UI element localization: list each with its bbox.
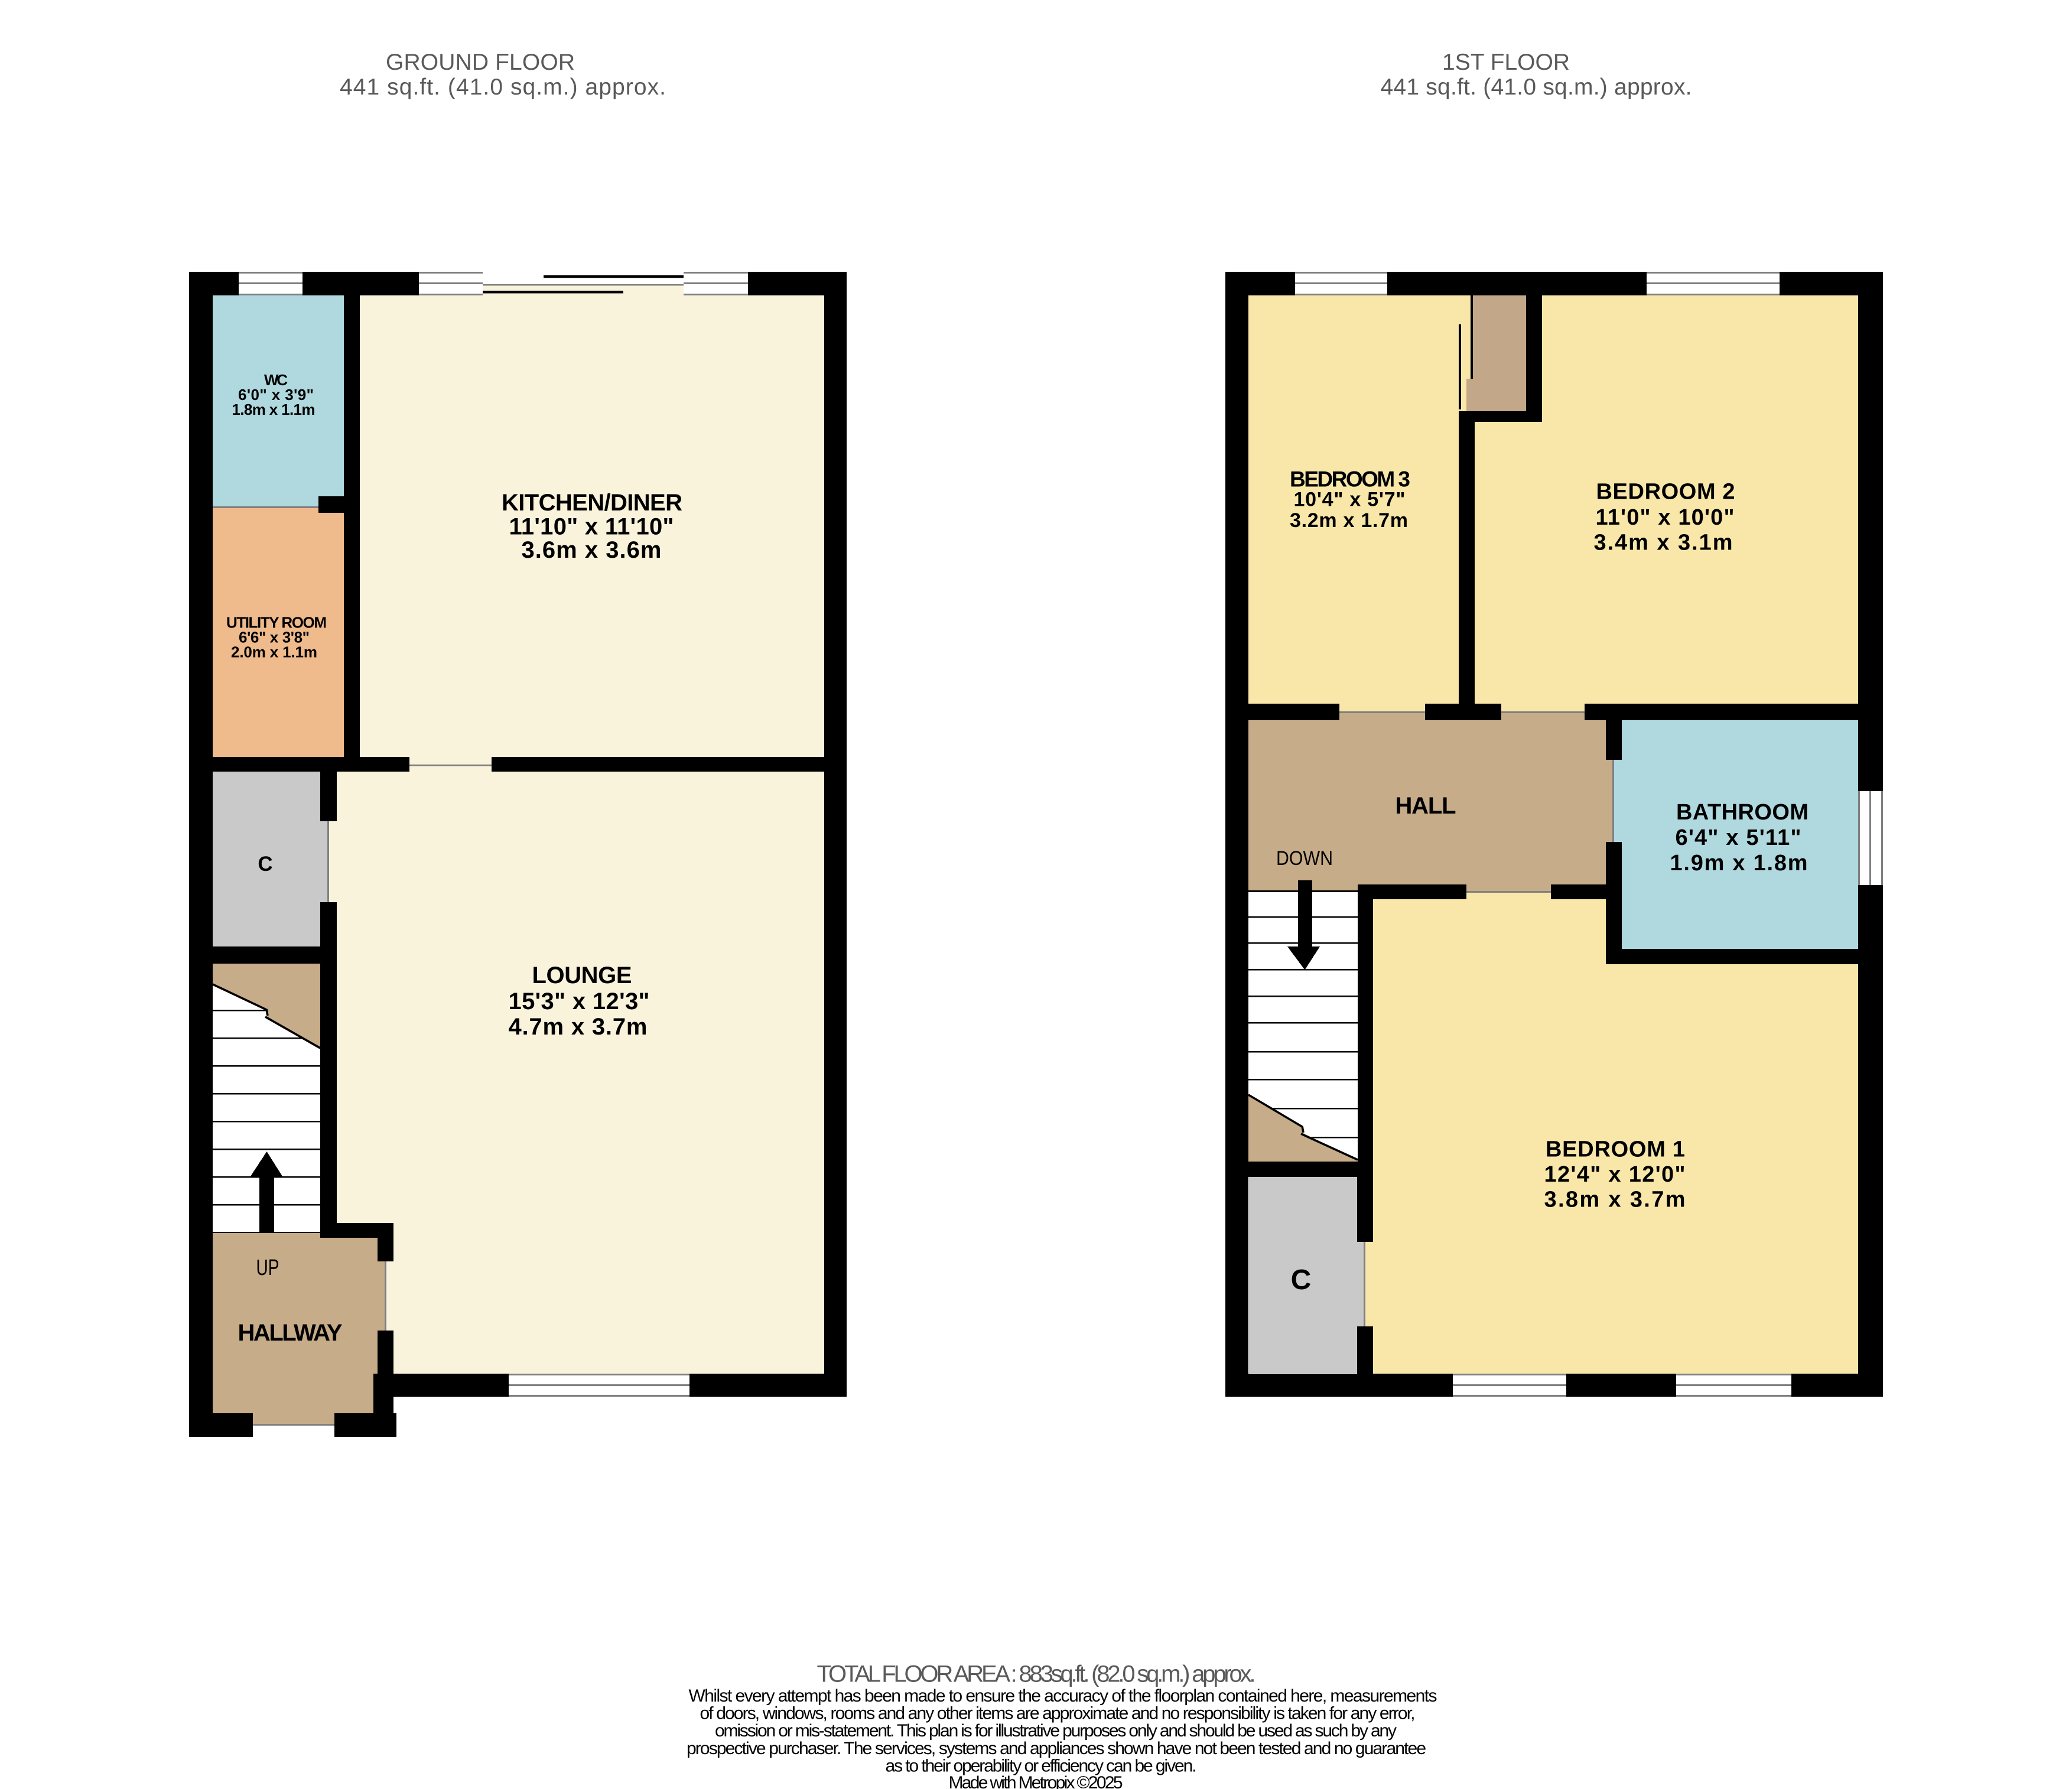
svg-text:6'4" x 5'11": 6'4" x 5'11" (1676, 825, 1801, 850)
svg-text:LOUNGE: LOUNGE (532, 962, 632, 988)
svg-text:omission or mis-statement. Thi: omission or mis-statement. This plan is … (715, 1721, 1397, 1741)
svg-text:TOTAL FLOOR AREA : 883sq.ft. (: TOTAL FLOOR AREA : 883sq.ft. (82.0 sq.m.… (817, 1661, 1256, 1687)
svg-text:Whilst every attempt has been: Whilst every attempt has been made to en… (689, 1686, 1437, 1706)
svg-text:BATHROOM: BATHROOM (1676, 800, 1808, 825)
svg-text:BEDROOM 3: BEDROOM 3 (1290, 467, 1410, 491)
svg-text:2.0m x 1.1m: 2.0m x 1.1m (231, 643, 317, 661)
svg-text:GROUND FLOOR: GROUND FLOOR (386, 50, 575, 75)
svg-text:prospective purchaser. The ser: prospective purchaser. The services, sys… (687, 1739, 1426, 1758)
svg-text:C: C (1291, 1264, 1312, 1296)
svg-text:3.2m x 1.7m: 3.2m x 1.7m (1290, 509, 1408, 532)
svg-text:C: C (258, 853, 272, 876)
svg-text:441 sq.ft. (41.0 sq.m.) approx: 441 sq.ft. (41.0 sq.m.) approx. (340, 74, 666, 100)
svg-text:BEDROOM 1: BEDROOM 1 (1546, 1137, 1685, 1162)
svg-text:15'3" x 12'3": 15'3" x 12'3" (509, 988, 650, 1014)
svg-text:UP: UP (256, 1255, 279, 1280)
svg-text:10'4" x 5'7": 10'4" x 5'7" (1294, 489, 1406, 511)
svg-text:KITCHEN/DINER: KITCHEN/DINER (502, 490, 682, 516)
svg-text:DOWN: DOWN (1276, 847, 1333, 870)
svg-text:441 sq.ft. (41.0 sq.m.) approx: 441 sq.ft. (41.0 sq.m.) approx. (1381, 74, 1692, 100)
svg-text:HALL: HALL (1396, 793, 1456, 819)
svg-text:Made with Metropix ©2025: Made with Metropix ©2025 (949, 1773, 1123, 1789)
svg-text:of doors, windows, rooms and a: of doors, windows, rooms and any other i… (700, 1704, 1416, 1723)
svg-text:11'10" x 11'10": 11'10" x 11'10" (509, 514, 674, 540)
svg-text:12'4" x 12'0": 12'4" x 12'0" (1544, 1162, 1686, 1187)
svg-text:1.8m x 1.1m: 1.8m x 1.1m (232, 401, 315, 418)
svg-text:HALLWAY: HALLWAY (238, 1320, 343, 1346)
svg-text:1ST FLOOR: 1ST FLOOR (1442, 50, 1570, 75)
svg-text:3.6m x 3.6m: 3.6m x 3.6m (522, 537, 662, 563)
svg-text:BEDROOM 2: BEDROOM 2 (1596, 480, 1735, 505)
svg-text:4.7m x 3.7m: 4.7m x 3.7m (509, 1014, 648, 1040)
svg-text:11'0" x 10'0": 11'0" x 10'0" (1596, 505, 1735, 530)
